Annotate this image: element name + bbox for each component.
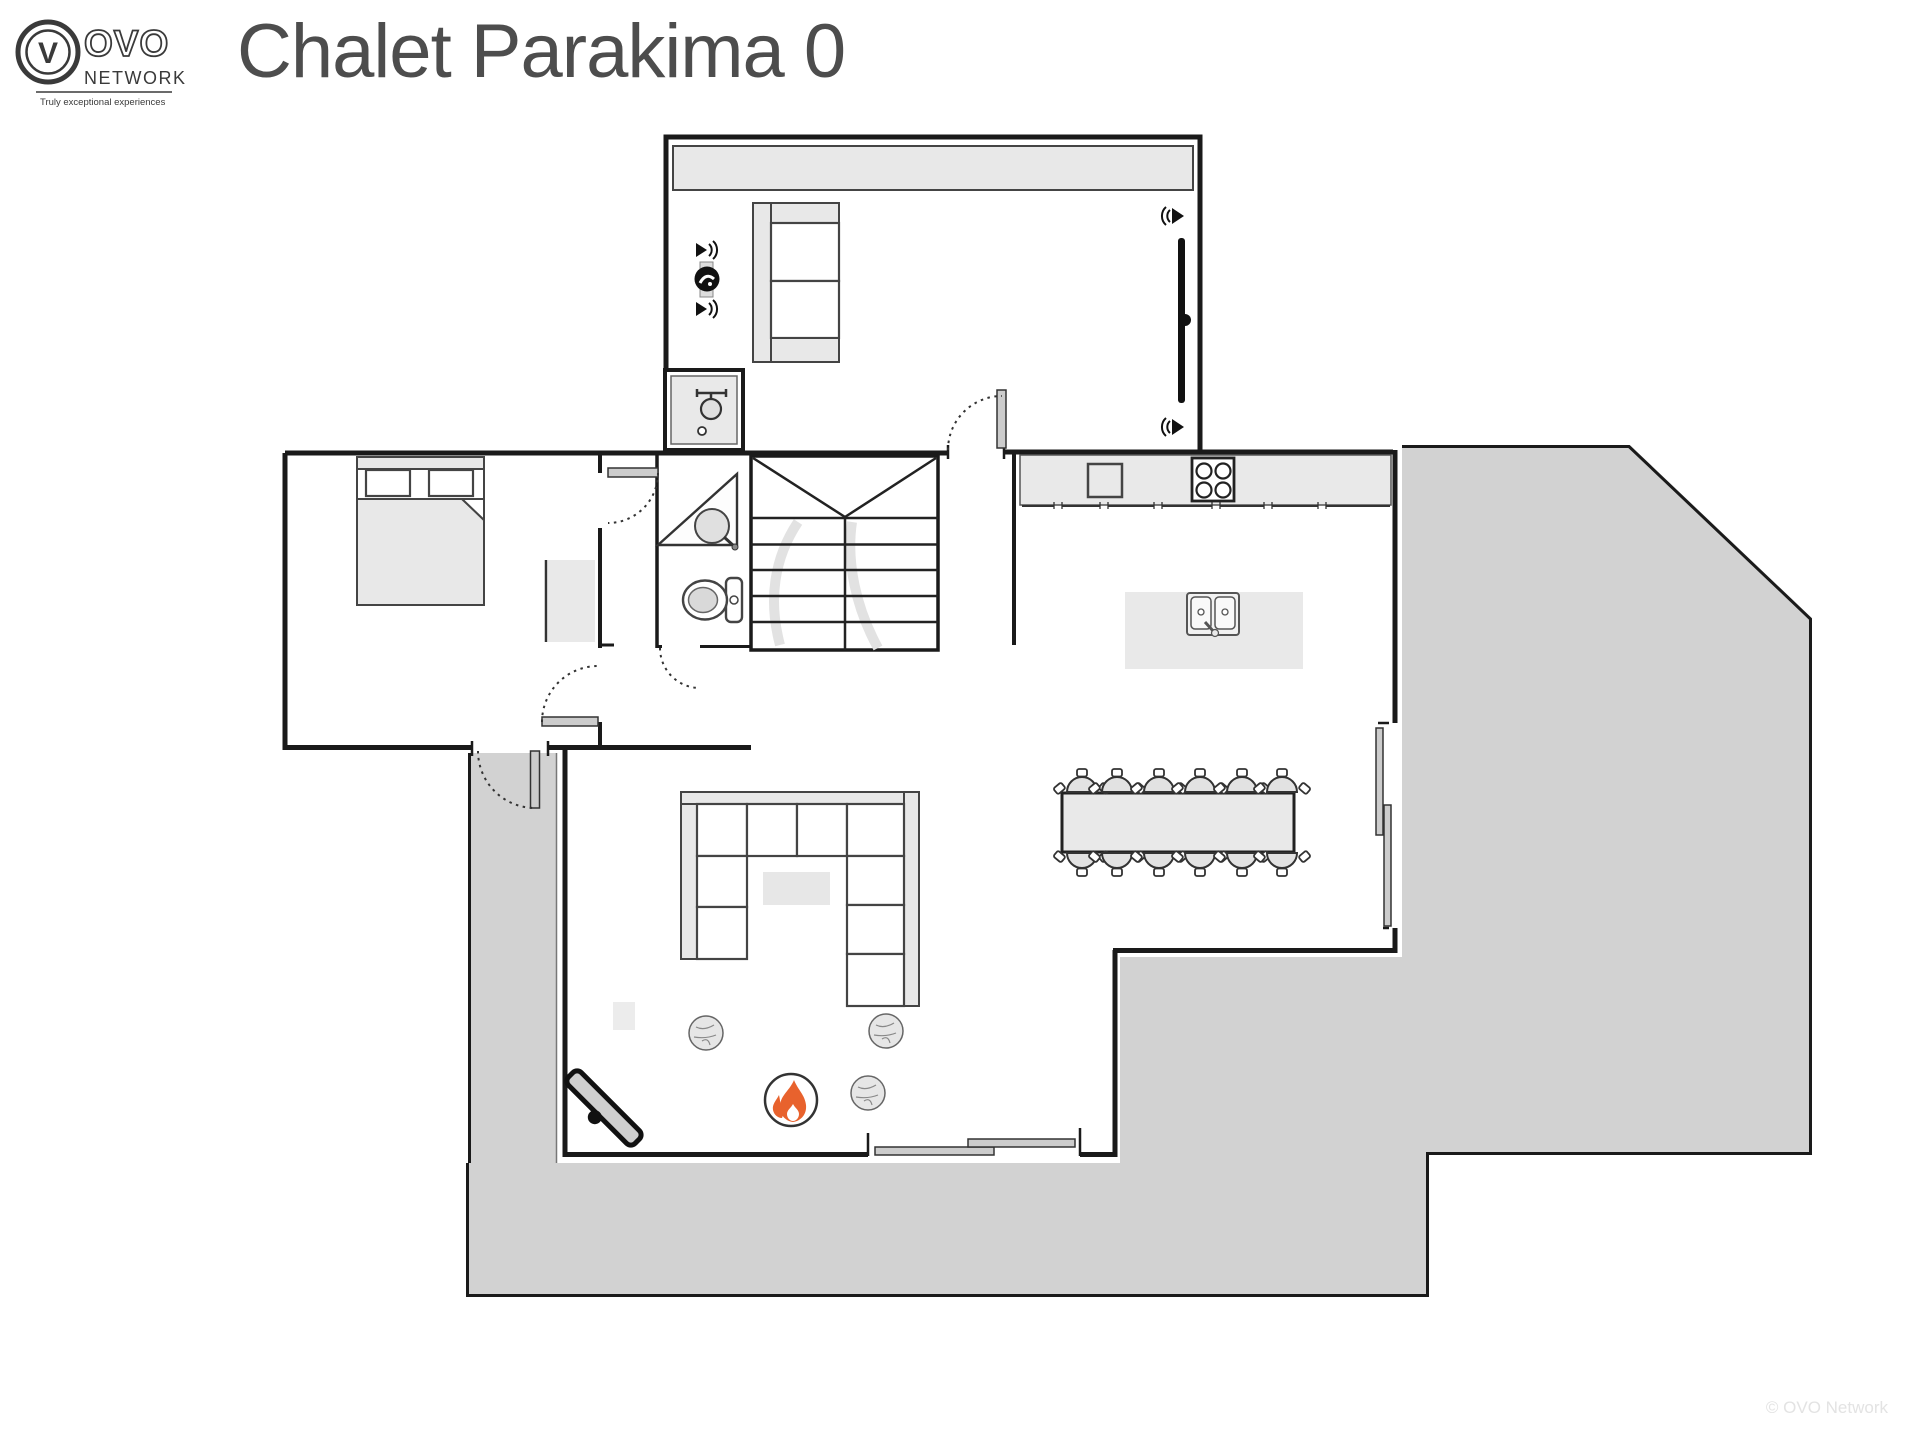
sofa-armrest-bottom	[771, 338, 839, 362]
balcony-lounge	[673, 146, 1193, 436]
logo-line2: NETWORK	[84, 68, 187, 88]
sofa-cushion	[747, 804, 797, 856]
hob-icon	[1192, 458, 1234, 501]
coffee-table	[763, 872, 830, 905]
bench	[557, 1068, 644, 1155]
logo-tagline: Truly exceptional experiences	[40, 97, 166, 108]
floor-plan	[0, 0, 1920, 1440]
sofa-cushion	[797, 804, 847, 856]
pouf	[851, 1076, 885, 1110]
corner-sink	[658, 474, 738, 550]
balcony-door-leaf	[997, 390, 1006, 448]
dining-chair	[1253, 850, 1311, 876]
sofa-cushion	[697, 907, 747, 959]
living-slider-panel-2	[968, 1139, 1075, 1147]
staircase	[751, 456, 938, 650]
sink-tap-end	[732, 544, 738, 550]
bed-headboard	[357, 457, 484, 469]
dining-area	[1053, 769, 1311, 876]
sofa-cushion	[847, 804, 904, 856]
header: V OVO NETWORK Truly exceptional experien…	[0, 0, 1920, 110]
sofa-back-top	[681, 792, 919, 804]
sofa-cushion	[847, 856, 904, 905]
bed-duvet	[357, 499, 484, 605]
bedroom-door-arc	[542, 666, 598, 722]
fireplace	[765, 1074, 817, 1126]
terrace-main	[466, 445, 1812, 1297]
bathroom-door-arc	[660, 648, 700, 688]
double-bed	[357, 457, 484, 605]
bed-pillow-right	[429, 470, 473, 496]
wall-bathroom-bottom	[600, 645, 751, 647]
dining-table	[1062, 793, 1294, 852]
entry-door-leaf	[531, 751, 540, 808]
pouf	[689, 1016, 723, 1050]
sofa-cushion	[847, 905, 904, 954]
logo-line1: OVO	[84, 23, 169, 64]
toilet-icon	[683, 578, 742, 622]
sofa-armrest-top	[771, 203, 839, 223]
corridor-door-leaf	[608, 468, 658, 477]
sofa-back	[753, 203, 771, 362]
sofa-back-right	[904, 792, 919, 1006]
bedroom-door-leaf	[542, 717, 598, 726]
dresser	[546, 560, 595, 642]
living-slider-panel-1	[875, 1147, 994, 1155]
corridor-door-arc	[608, 473, 658, 523]
bathroom	[658, 474, 742, 622]
two-seat-sofa	[753, 203, 839, 362]
speaker-icon	[1162, 418, 1184, 436]
ovo-network-logo: V OVO NETWORK Truly exceptional experien…	[14, 8, 194, 108]
watermark: © OVO Network	[1766, 1398, 1888, 1418]
sofa-cushion	[697, 804, 747, 856]
dining-chair	[1253, 769, 1311, 795]
dining-slider-panel-1	[1376, 728, 1383, 835]
side-table	[613, 1002, 635, 1030]
logo-monogram: V	[38, 37, 58, 70]
bedroom	[357, 457, 595, 642]
speaker-icon	[696, 300, 717, 318]
terrace-deck	[466, 445, 1812, 1297]
sofa-cushion	[697, 856, 747, 907]
island-double-sink	[1187, 593, 1239, 637]
page-title: Chalet Parakima 0	[237, 14, 845, 90]
pouf	[869, 1014, 903, 1048]
entry-porch	[468, 753, 557, 1165]
kitchen	[1020, 455, 1391, 669]
dining-slider-panel-2	[1384, 805, 1391, 926]
bed-pillow-left	[366, 470, 410, 496]
speaker-icon	[696, 241, 717, 259]
sofa-cushion-2	[771, 281, 839, 338]
sofa-cushion	[847, 954, 904, 1006]
balcony-bench-strip	[673, 146, 1193, 190]
sofa-back-left	[681, 792, 697, 959]
living-room	[557, 792, 919, 1155]
balcony-door-arc	[948, 396, 1002, 450]
sofa-cushion-1	[771, 223, 839, 281]
media-icon	[695, 262, 720, 297]
wall-tv	[1178, 238, 1191, 403]
shower-room	[665, 370, 743, 450]
speaker-icon	[1162, 207, 1184, 225]
